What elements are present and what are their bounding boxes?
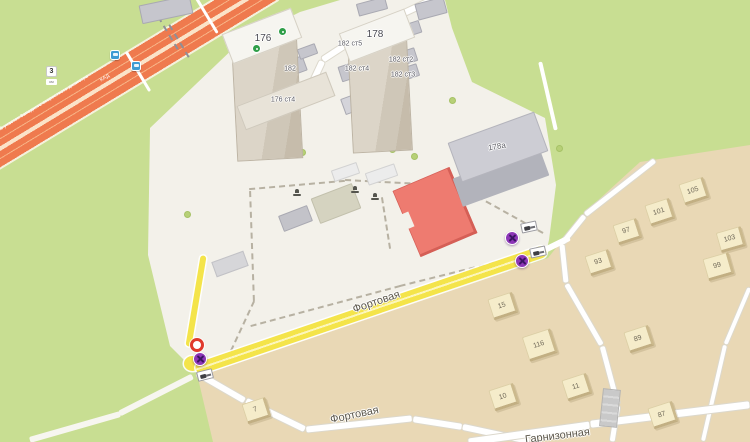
house-number: 93	[593, 257, 603, 266]
path-southwest	[118, 374, 194, 417]
km-marker-badge[interactable]: 3	[46, 66, 57, 77]
house-number: 105	[686, 185, 699, 195]
km-marker-value: 3	[50, 68, 54, 75]
green-organization-icon[interactable]	[252, 44, 261, 53]
building-label-182s5[interactable]: 182 ст5	[338, 41, 362, 48]
green-organization-icon[interactable]	[278, 27, 287, 36]
bus-stop-icon[interactable]	[131, 61, 141, 71]
house-number: 10	[498, 392, 508, 401]
playground-icon	[293, 189, 301, 196]
house-number: 11	[571, 382, 580, 391]
building-label-176s4[interactable]: 176 ст4	[271, 97, 295, 104]
house-number: 99	[713, 261, 722, 270]
tree-icon	[556, 145, 563, 152]
tree-icon	[449, 97, 456, 104]
no-stopping-sign[interactable]	[193, 352, 207, 366]
map-canvas[interactable]: 105 участок Западного скоростного диамет…	[0, 0, 750, 442]
building-label-182s3[interactable]: 182 ст3	[391, 72, 415, 79]
building-label-176[interactable]: 176	[255, 34, 272, 44]
path-southwest	[29, 411, 121, 442]
km-marker-sub: км	[46, 79, 57, 85]
house-number: 101	[652, 206, 665, 216]
no-stopping-sign[interactable]	[505, 231, 519, 245]
building-label-182s2[interactable]: 182 ст2	[389, 57, 413, 64]
no-stopping-sign[interactable]	[515, 254, 529, 268]
playground-icon	[371, 193, 379, 200]
house-number: 89	[633, 334, 643, 343]
house-number: 7	[252, 406, 258, 414]
building-label-182[interactable]: 182	[284, 66, 296, 73]
playground-icon	[351, 186, 359, 193]
building-label-178[interactable]: 178	[367, 30, 384, 40]
house-number: 87	[657, 410, 667, 419]
house-number: 116	[532, 339, 545, 349]
tree-icon	[411, 153, 418, 160]
house-number: 103	[723, 234, 736, 244]
prohibition-ring-sign[interactable]	[190, 338, 204, 352]
house-number: 97	[621, 226, 631, 235]
house-number: 15	[497, 301, 507, 310]
bus-stop-icon[interactable]	[110, 50, 120, 60]
tree-icon	[184, 211, 191, 218]
building-label-182s4[interactable]: 182 ст4	[345, 66, 369, 73]
